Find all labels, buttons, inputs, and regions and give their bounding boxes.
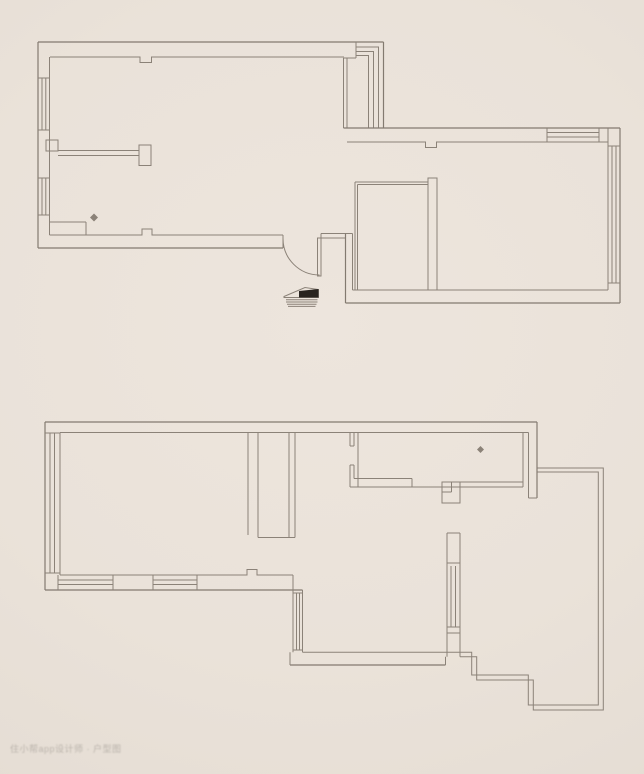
bay-window-line xyxy=(356,47,379,128)
room-wall-right xyxy=(428,178,437,290)
wall-bottom-inner xyxy=(60,570,293,576)
wall-top-inner xyxy=(50,57,344,63)
watermark-text: 住小帮app设计师 · 户型图 xyxy=(10,742,122,755)
lower-floor-plan xyxy=(45,422,603,710)
partition-end-cap xyxy=(139,145,151,166)
wall-mid-inner xyxy=(347,142,608,148)
door-swing-arc xyxy=(283,239,320,276)
marker-diamond xyxy=(90,214,98,222)
door-leaf xyxy=(318,238,322,276)
terrace-parapet-outer xyxy=(460,468,603,710)
floor-plan-canvas xyxy=(0,0,644,774)
floor-plan-image: 住小帮app设计师 · 户型图 xyxy=(0,0,644,774)
entry-marker-arrow xyxy=(299,289,319,298)
upper-floor-plan xyxy=(38,42,620,306)
partition-stub xyxy=(46,140,58,151)
terrace-parapet-inner xyxy=(303,472,599,705)
bay-window-line xyxy=(356,52,374,129)
wall-bottom-inner xyxy=(50,229,284,235)
marker-diamond xyxy=(477,446,484,453)
bay-window-line xyxy=(356,56,369,129)
